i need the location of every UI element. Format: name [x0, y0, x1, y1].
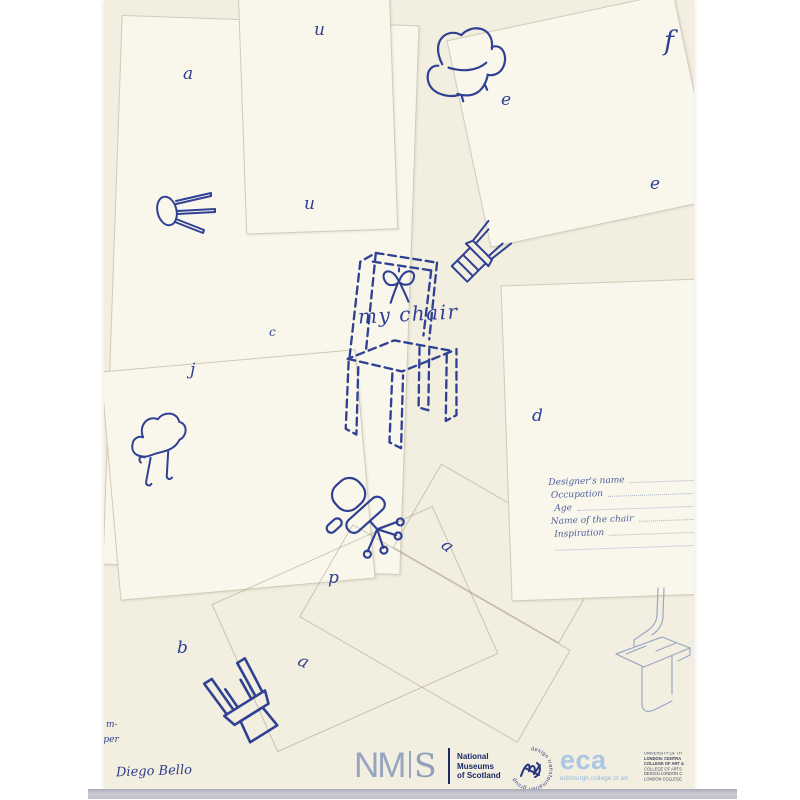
armchair-sketch-icon [414, 15, 514, 106]
handwritten-letter: e [501, 92, 511, 109]
eca-name: edinburgh college of art [560, 775, 628, 782]
handwritten-letter: b [177, 640, 188, 657]
designer-form-card: Designer's name Occupation Age Name of t… [501, 279, 694, 602]
scan-paper: Designer's name Occupation Age Name of t… [104, 0, 694, 790]
handwritten-letter: u [314, 22, 325, 39]
curvy-chair-sketch-icon [121, 407, 204, 490]
university-text-block: UNIVERSITY OF TH LONDON: CENTRA COLLEGE … [644, 752, 694, 783]
museum-name-line: Museums [457, 762, 501, 772]
stamp-ring-text: design transformation group [511, 746, 553, 790]
handwriting-fragment: aper [104, 735, 119, 745]
designer-signature: Diego Bello [116, 763, 192, 781]
museum-name: National Museums of Scotland [457, 748, 501, 781]
design-transformation-group-stamp-icon: design transformation group [508, 746, 554, 790]
handwriting-fragment: m- [106, 720, 118, 730]
museum-name-line: of Scotland [457, 771, 501, 781]
nms-logo-nm: NM [354, 748, 404, 783]
dotted-line [556, 545, 694, 551]
handwritten-letter: c [269, 326, 276, 338]
museum-name-line: National [457, 752, 501, 762]
svg-text:design transformation group: design transformation group [511, 746, 553, 790]
nms-logo: NM S National Museums of Scotland [354, 748, 501, 784]
handwritten-letter: d [532, 408, 543, 425]
stool-sketch-icon [154, 186, 218, 234]
university-line: LONDON COLLEGE [644, 778, 694, 783]
designer-form: Designer's name Occupation Age Name of t… [548, 470, 694, 553]
nms-logo-s: S [414, 748, 437, 783]
handwritten-letter: f [664, 28, 674, 55]
eca-logo: eca edinburgh college of art [560, 748, 628, 782]
form-label: Inspiration [554, 528, 604, 540]
handwritten-letter: a [183, 66, 193, 83]
cardboard-chair-diagram-icon [614, 588, 694, 736]
logo-divider-bar [448, 748, 451, 784]
handwritten-letter: e [650, 176, 660, 193]
form-label: Age [554, 503, 572, 514]
eca-acronym: eca [560, 748, 628, 772]
scan-bottom-strip [88, 789, 737, 799]
handwritten-letter: u [304, 196, 315, 213]
nms-logo-divider [409, 751, 411, 778]
handwritten-letter: p [328, 570, 339, 587]
form-label: Occupation [551, 489, 603, 501]
handwritten-letter: j [190, 362, 195, 379]
scanned-artwork-page: Designer's name Occupation Age Name of t… [0, 0, 800, 800]
